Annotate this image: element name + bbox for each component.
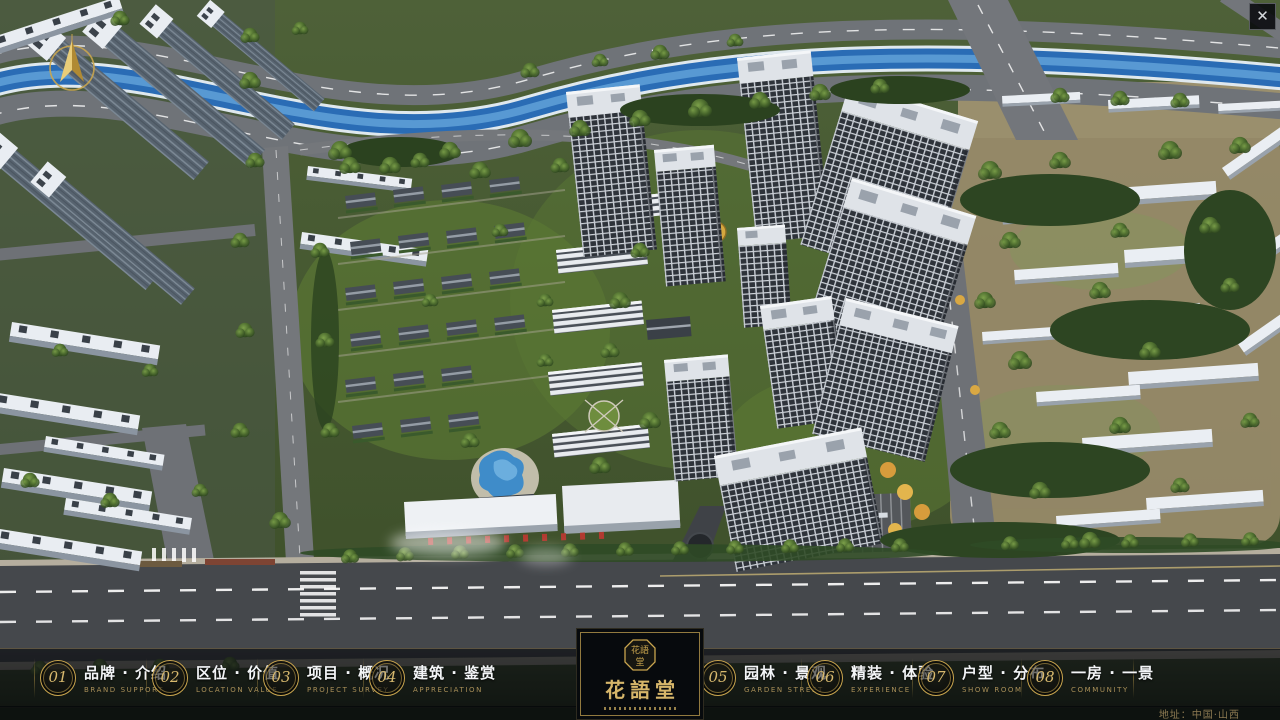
nav-number-badge: 08 bbox=[1027, 660, 1063, 696]
brand-title: 花語堂 bbox=[600, 674, 680, 703]
nav-item-brand-intro[interactable]: 01 品牌 · 介绍 BRAND SUPPORT bbox=[40, 649, 167, 707]
nav-number-badge: 01 bbox=[40, 660, 76, 696]
pavilion bbox=[646, 316, 692, 340]
address-text: 地址：中国·山西 bbox=[1159, 706, 1240, 720]
brand-subtitle-line bbox=[604, 707, 676, 710]
nav-label: 一房 · 一景 bbox=[1071, 662, 1154, 683]
masterplan-aerial-view[interactable] bbox=[0, 0, 1280, 720]
nav-item-architecture[interactable]: 04 建筑 · 鉴赏 APPRECIATION bbox=[369, 649, 496, 707]
nav-number-badge: 04 bbox=[369, 660, 405, 696]
nav-sublabel: COMMUNITY bbox=[1071, 686, 1154, 694]
nav-number-badge: 02 bbox=[152, 660, 188, 696]
brand-seal-icon: 花語 堂 bbox=[623, 638, 657, 672]
svg-text:堂: 堂 bbox=[635, 656, 644, 668]
brand-logo-panel: 花語 堂 花語堂 bbox=[576, 628, 704, 720]
svg-text:花語: 花語 bbox=[631, 644, 649, 656]
nav-label: 建筑 · 鉴赏 bbox=[413, 662, 496, 683]
nav-item-room-views[interactable]: 08 一房 · 一景 COMMUNITY bbox=[1027, 649, 1154, 707]
separator bbox=[34, 658, 35, 698]
close-button[interactable]: ✕ bbox=[1249, 3, 1276, 30]
compass-icon bbox=[40, 32, 104, 100]
sales-presentation-window: ✕ 01 品牌 · 介绍 BRAND SUPPORT 02 区位 · 价值 LO… bbox=[0, 0, 1280, 720]
bottom-menu: 01 品牌 · 介绍 BRAND SUPPORT 02 区位 · 价值 LOCA… bbox=[0, 648, 1280, 720]
nav-item-location-value[interactable]: 02 区位 · 价值 LOCATION VALUE bbox=[152, 649, 279, 707]
nav-number-badge: 03 bbox=[263, 660, 299, 696]
nav-number-badge: 06 bbox=[807, 660, 843, 696]
close-icon: ✕ bbox=[1256, 9, 1269, 24]
nav-item-interior-experience[interactable]: 06 精装 · 体验 EXPERIENCE bbox=[807, 649, 934, 707]
nav-sublabel: APPRECIATION bbox=[413, 686, 496, 694]
nav-number-badge: 05 bbox=[700, 660, 736, 696]
nav-number-badge: 07 bbox=[918, 660, 954, 696]
